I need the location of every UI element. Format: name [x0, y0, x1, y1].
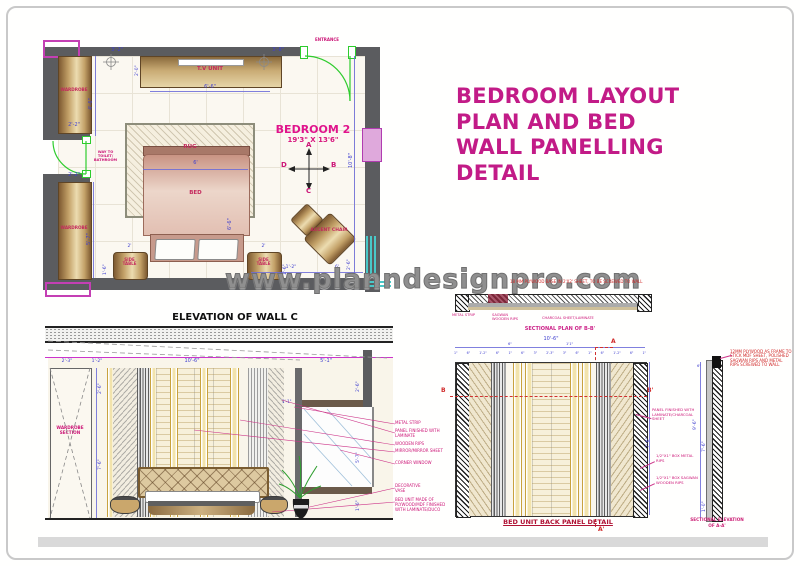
aa-bar-hatch — [712, 360, 723, 522]
bp-dim: 6" — [601, 351, 605, 358]
ann-bed-unit-material: BED UNIT MADE OF PLYWOOD/MDF FINISHED WI… — [395, 498, 450, 512]
toilet-door-arc — [53, 141, 86, 174]
aa-ann-panel: PANEL FINISHED WITH LAMINATE/CHARCOAL SH… — [652, 408, 700, 422]
dim-line — [95, 56, 96, 136]
elevation-wall-c: ELEVATION OF WALL C WARDROBE SECTION 2'-… — [42, 308, 448, 548]
wood-rip-column — [570, 363, 579, 516]
aa-ann-metal-rips: 1/2"X1" BOX METAL RIPS — [656, 454, 700, 463]
sectional-plan-bb: 18 MM PLYWOOD BASE IN 2'X2' SHEET, TO BE… — [450, 280, 655, 340]
dim-line — [455, 347, 645, 348]
bp-dim: 6" — [521, 351, 525, 358]
dim-side-table-left: 2' — [113, 244, 146, 249]
ann-wooden-rips: WOODEN RIPS — [395, 442, 447, 447]
bp-dim: 1'-2" — [613, 351, 621, 358]
wardrobe-bottom-label: WARDROBE — [58, 226, 90, 231]
bb-note: 18 MM PLYWOOD BASE IN 2'X2' SHEET, TO BE… — [510, 280, 655, 284]
bp-subdims: 1" 6" 1'-2" 6" 1" 6" 3" 2'-3" 3" 6" 1" 6… — [454, 351, 646, 358]
floor-plan: BEDROOM 2 19'3" X 13'6" T.V UNIT RUG BED… — [43, 40, 383, 293]
bp-dim: 1'-2" — [479, 351, 487, 358]
entrance-label: ENTRANCE — [305, 38, 349, 42]
bp-dim: 1" — [508, 351, 512, 358]
bb-end-cap — [637, 294, 652, 312]
vase-band — [294, 505, 308, 509]
tv-unit-label: T.V UNIT — [140, 66, 280, 72]
dim-left-upper: 4'-6" — [89, 98, 95, 110]
entrance-door-arc — [305, 56, 350, 101]
wood-rip-column — [582, 363, 591, 516]
title-line-3: WALL PANELLING — [456, 135, 706, 161]
bp-wood-diag — [611, 363, 633, 516]
aa-dim-inner: 7'-6" — [702, 441, 707, 452]
aa-title-line1: SECTIONAL ELEVATION — [688, 518, 746, 523]
leader — [640, 483, 655, 491]
wood-rip-column — [513, 363, 522, 516]
bp-marker-b: B — [441, 388, 446, 395]
bp-center-field — [532, 363, 570, 516]
compass-a: A — [306, 142, 311, 150]
title-line-2: PLAN AND BED — [456, 110, 706, 136]
bb-metal-segment — [488, 294, 508, 303]
wardrobe-top-label: WARDROBE — [58, 88, 90, 93]
aa-title-line2: OF A-A' — [688, 524, 746, 529]
dim-line — [150, 91, 270, 92]
toilet-route-label: WAY TO TOILET/ BATHROOM — [93, 150, 118, 162]
ceiling-dashed-lines — [48, 341, 387, 360]
bb-title: SECTIONAL PLAN OF B-B' — [495, 327, 625, 333]
ann-panel-laminate: PANEL FINISHED WITH LAMINATE — [395, 429, 447, 439]
dim-side-table-right: 2' — [247, 244, 280, 249]
aa-dim-top: 6" — [697, 364, 701, 368]
bp-raised-dim-1: 6" — [508, 342, 512, 346]
dim-side-table-left-d: 1'-6" — [103, 264, 108, 275]
section-aa: 6" 9'-6" 7'-6" 1'-0" 12MM PLYWOOD AS FRA… — [640, 340, 800, 545]
room-name: BEDROOM 2 — [275, 124, 351, 136]
bp-dim: 6" — [575, 351, 579, 358]
bed-label: BED — [143, 190, 248, 196]
bp-stripes — [596, 363, 611, 516]
bp-dim: 6" — [467, 351, 471, 358]
ann-mirror-sheet: MIRROR/MIRROR SHEET — [395, 449, 447, 454]
dim-right-wall: 10'-8" — [349, 153, 355, 168]
side-table-left-label: SIDE TABLE — [120, 258, 139, 267]
aa-note: 12MM PLYWOOD AS FRAME TO STICK MDF SHEET… — [730, 350, 792, 368]
dim-bed-width: 6' — [173, 161, 218, 167]
bb-label-wooden-rips: SAGWAN WOODEN RIPS — [492, 313, 520, 322]
dim-line — [93, 182, 94, 278]
leader — [640, 461, 655, 469]
compass-b: B — [331, 162, 336, 170]
bp-dim: 2'-3" — [546, 351, 554, 358]
dim-left-lower: 5'-7" — [87, 233, 93, 245]
window-glazing-lines — [304, 409, 371, 486]
compass-cross — [293, 153, 325, 185]
dim-top-left-v: 2'-0" — [135, 65, 140, 76]
title-line-4: DETAIL — [456, 161, 706, 187]
dim-tv-width: 6'-6" — [140, 85, 280, 91]
bp-marker-a: A — [611, 339, 616, 346]
dim-top-left: 3'-2" — [100, 48, 134, 54]
accent-chair-label: ACCENT CHAIR — [309, 228, 349, 233]
ann-corner-window: CORNER WINDOW — [395, 461, 447, 466]
wardrobe-x-brace — [50, 368, 90, 518]
bp-panel — [455, 362, 647, 517]
bp-title: BED UNIT BACK PANEL DETAIL — [488, 519, 628, 526]
bp-dim: 3" — [563, 351, 567, 358]
back-panel-detail: 10'-6" 6" 1'1" A 1" 6" 1'-2" 6" 1" 6" 3"… — [448, 338, 660, 543]
rug-label: RUG — [163, 144, 217, 150]
aa-ann-wood-rips: 1/2"X1" BOX SAGWAN WOODEN RIPS — [656, 476, 700, 485]
title-line-1: BEDROOM LAYOUT — [456, 84, 706, 110]
ann-decorative-vase: DECORATIVE VASE — [395, 484, 425, 494]
dim-bed-length: 6'-6" — [228, 218, 234, 230]
bp-marker-a-prime: A' — [598, 527, 604, 534]
vase — [293, 499, 309, 519]
bp-raised-dim-2: 1'1" — [566, 342, 573, 346]
drawing-sheet: BEDROOM 2 19'3" X 13'6" T.V UNIT RUG BED… — [0, 0, 800, 566]
bb-label-metal-strip: METAL STRIP — [452, 313, 476, 317]
section-b-line — [450, 396, 647, 397]
bp-dim: 6" — [496, 351, 500, 358]
dim-top-right: 3'-8" — [258, 48, 298, 54]
bp-dim: 1" — [454, 351, 458, 358]
elevation-linework — [42, 308, 448, 548]
bp-stripes — [491, 363, 506, 516]
dim-line — [143, 169, 248, 170]
dim-line — [700, 362, 701, 518]
bb-laminate-strip — [468, 307, 637, 310]
leader-lines — [194, 400, 395, 512]
room-size: 19'3" X 13'6" — [275, 137, 351, 145]
dim-wardrobe-bottom: 2'-2" — [58, 173, 90, 179]
bp-dim: 6" — [630, 351, 634, 358]
decorative-plant — [279, 456, 321, 519]
ann-metal-strip: METAL STRIP — [395, 421, 447, 426]
bp-dim: 3" — [534, 351, 538, 358]
bp-dim: 1" — [588, 351, 592, 358]
sheet-title: BEDROOM LAYOUT PLAN AND BED WALL PANELLI… — [456, 84, 706, 186]
bp-wood-diag — [469, 363, 491, 516]
bb-label-charcoal: CHARCOAL SHEET/LAMINATE — [542, 316, 637, 320]
compass-c: C — [306, 188, 311, 196]
dim-wardrobe-top: 2'-2" — [58, 123, 90, 129]
section-a-dash — [595, 347, 613, 348]
compass-d: D — [281, 162, 287, 170]
aa-dim-bottom: 1'-0" — [702, 501, 707, 512]
